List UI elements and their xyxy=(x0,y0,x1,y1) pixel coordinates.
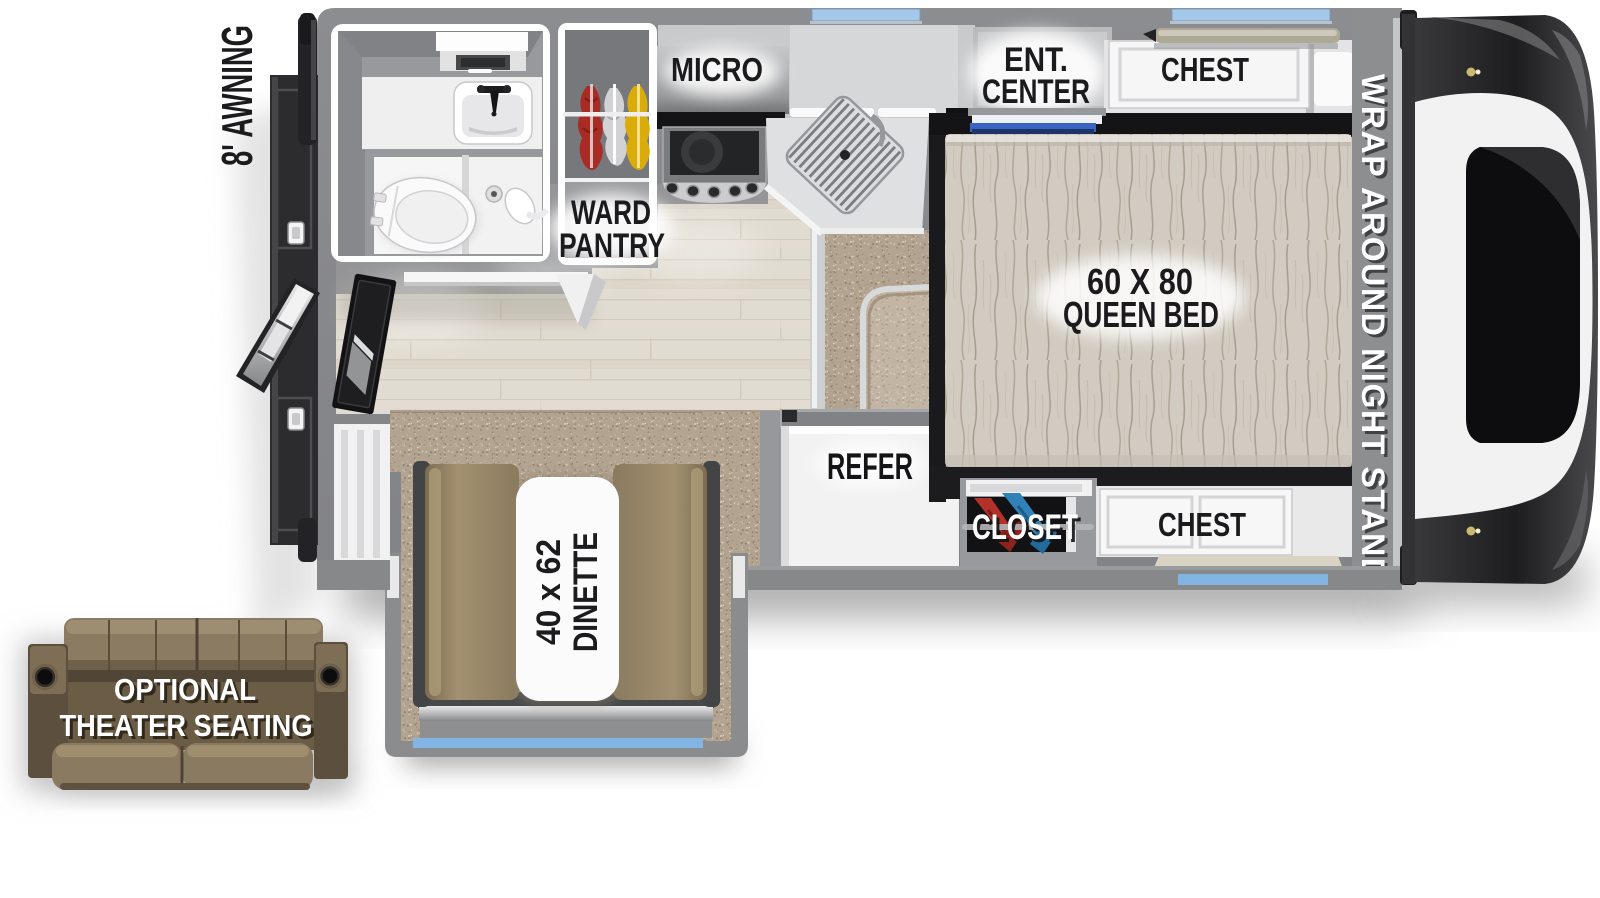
svg-text:WRAP AROUND NIGHT STAND: WRAP AROUND NIGHT STAND xyxy=(1355,74,1391,581)
svg-text:PANTRY: PANTRY xyxy=(559,227,665,265)
svg-text:CENTER: CENTER xyxy=(982,73,1090,111)
svg-text:MICRO: MICRO xyxy=(671,51,763,88)
svg-text:DINETTE: DINETTE xyxy=(567,532,605,652)
svg-text:QUEEN BED: QUEEN BED xyxy=(1063,294,1219,335)
svg-text:THEATER SEATING: THEATER SEATING xyxy=(60,708,313,743)
svg-text:REFER: REFER xyxy=(827,446,913,487)
svg-text:40 x 62: 40 x 62 xyxy=(530,539,568,645)
svg-text:CLOSET: CLOSET xyxy=(972,508,1078,547)
svg-text:OPTIONAL: OPTIONAL xyxy=(114,672,256,707)
svg-text:CHEST: CHEST xyxy=(1158,506,1246,543)
svg-text:8' AWNING: 8' AWNING xyxy=(213,25,262,166)
svg-text:CHEST: CHEST xyxy=(1161,51,1249,88)
